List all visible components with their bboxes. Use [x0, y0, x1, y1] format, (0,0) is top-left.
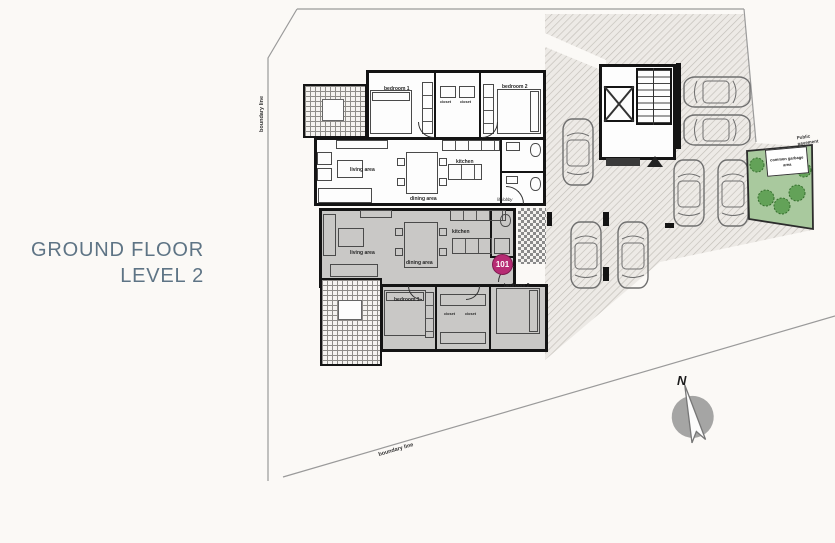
tv-bench-icon [336, 140, 388, 149]
chair-icon [439, 228, 447, 236]
page-title: GROUND FLOOR LEVEL 2 [22, 237, 204, 289]
entrance-mat [606, 158, 640, 166]
sink-icon [506, 176, 518, 184]
closet-icon [459, 86, 475, 98]
pillow-icon [530, 91, 539, 132]
dining-table-icon [406, 152, 438, 194]
label-101-bedroom2: bedroom 2 [504, 283, 530, 289]
closet-icon [440, 86, 456, 98]
wardrobe-icon [425, 292, 434, 338]
entrance-arrow-icon [647, 156, 663, 167]
label-101-dining: dining area [406, 260, 433, 266]
wall [489, 284, 491, 352]
page-title-line2: LEVEL 2 [22, 263, 204, 289]
kitchen-counter-icon [450, 210, 506, 221]
kitchen-counter-icon [442, 140, 500, 151]
label-upper-bedroom2: bedroom 2 [502, 84, 528, 90]
label-upper-dining: dining area [410, 196, 437, 202]
stairs-rail [653, 68, 654, 125]
sofa-icon [318, 188, 372, 203]
chair-icon [439, 248, 447, 256]
north-arrow-icon [664, 380, 719, 446]
coffee-table-icon [338, 228, 364, 247]
tree-icon [774, 198, 790, 214]
armchair-icon [317, 168, 332, 181]
page-title-line1: GROUND FLOOR [22, 237, 204, 263]
terrace-101 [320, 278, 382, 366]
label-upper-kitchen: kitchen [456, 159, 474, 165]
label-101-bedroom1: bedroom 1 [394, 297, 420, 303]
pillow-icon [529, 290, 538, 332]
wall [434, 70, 436, 140]
tree-icon [758, 190, 774, 206]
label-101-kitchen: kitchen [452, 229, 470, 235]
label-upper-living: living area [350, 167, 375, 173]
stairs-icon [636, 68, 672, 125]
shower-icon [494, 238, 510, 254]
label-upper-lobby: lift lobby [497, 197, 512, 202]
wall [500, 171, 546, 173]
walkway-paving [518, 208, 546, 264]
closet-icon [440, 294, 486, 306]
sofa-icon [323, 214, 336, 256]
toilet-icon [530, 177, 541, 191]
tv-bench-icon [360, 210, 392, 218]
chair-icon [395, 248, 403, 256]
kitchen-island-icon [452, 238, 492, 254]
north-label: N [677, 373, 686, 388]
terrace-upper-planter [322, 99, 344, 121]
sofa-icon [330, 264, 378, 277]
tree-icon [750, 158, 764, 172]
wall [435, 284, 437, 352]
chair-icon [395, 228, 403, 236]
kitchen-island-icon [448, 164, 482, 180]
unit-101-badge: 101 [492, 254, 513, 275]
label-upper-closet1: closet [440, 100, 451, 104]
armchair-icon [317, 152, 332, 165]
sink-icon [506, 142, 520, 151]
label-101-closet2: closet [465, 312, 476, 316]
toilet-icon [530, 143, 541, 157]
chair-icon [397, 178, 405, 186]
closet-icon [440, 332, 486, 344]
wall [479, 70, 481, 140]
chair-icon [439, 158, 447, 166]
label-upper-closet2: closet [460, 100, 471, 104]
chair-icon [397, 158, 405, 166]
label-101-living: living area [350, 250, 375, 256]
boundary-label-left: boundary line [259, 96, 265, 132]
terrace-101-planter [338, 300, 362, 320]
toilet-icon [500, 214, 511, 227]
garbage-area-label: common garbage area [765, 146, 809, 177]
label-upper-bedroom1: bedroom 1 [384, 86, 410, 92]
pillow-icon [372, 92, 410, 101]
chair-icon [439, 178, 447, 186]
label-101-closet1: closet [444, 312, 455, 316]
tree-icon [789, 185, 805, 201]
floor-plan-page: GROUND FLOOR LEVEL 2 boundary line bound… [0, 0, 835, 543]
